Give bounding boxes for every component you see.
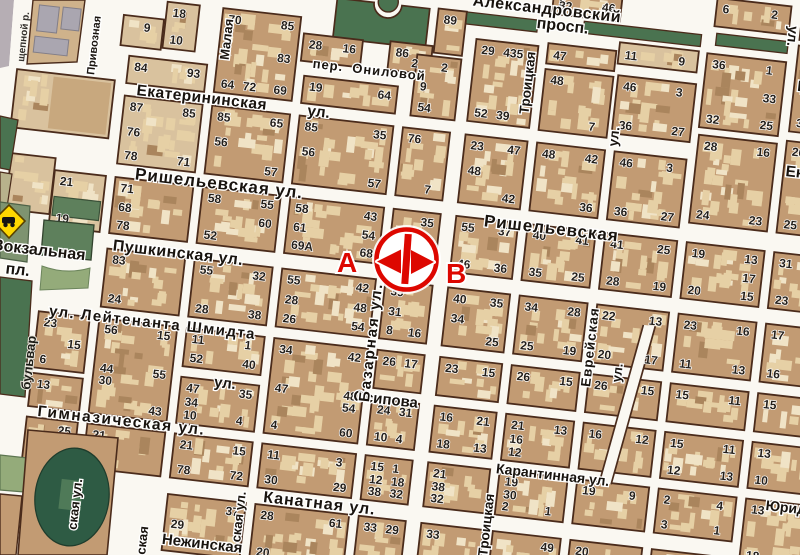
- svg-text:25: 25: [656, 242, 671, 257]
- svg-text:34: 34: [279, 342, 294, 357]
- svg-text:20: 20: [687, 283, 702, 298]
- svg-text:60: 60: [338, 425, 353, 440]
- svg-text:34: 34: [524, 299, 539, 314]
- svg-text:52: 52: [203, 228, 218, 243]
- svg-text:65: 65: [269, 115, 284, 130]
- svg-text:15: 15: [762, 397, 777, 412]
- svg-text:11: 11: [722, 442, 737, 457]
- svg-text:В: В: [446, 258, 466, 289]
- svg-text:435: 435: [503, 45, 525, 61]
- svg-text:10: 10: [373, 429, 388, 444]
- svg-text:16: 16: [588, 426, 603, 441]
- svg-text:13: 13: [553, 423, 568, 438]
- svg-text:13: 13: [473, 441, 488, 456]
- svg-text:28: 28: [284, 292, 299, 307]
- svg-text:16: 16: [439, 409, 454, 424]
- svg-text:55: 55: [286, 272, 301, 287]
- svg-text:15: 15: [739, 289, 754, 304]
- svg-text:11: 11: [267, 447, 282, 462]
- svg-text:15: 15: [481, 365, 496, 380]
- svg-text:10: 10: [169, 33, 184, 48]
- svg-text:72: 72: [229, 468, 244, 483]
- svg-text:87: 87: [129, 99, 144, 114]
- svg-text:55: 55: [152, 367, 167, 382]
- svg-text:17: 17: [404, 356, 419, 371]
- svg-text:85: 85: [280, 18, 295, 33]
- svg-text:18: 18: [172, 6, 187, 21]
- svg-text:23: 23: [444, 361, 459, 376]
- svg-text:18: 18: [745, 548, 760, 555]
- svg-text:29: 29: [332, 480, 347, 495]
- svg-text:56: 56: [214, 134, 229, 149]
- svg-text:пл.: пл.: [5, 260, 31, 280]
- svg-text:16: 16: [407, 325, 422, 340]
- svg-text:16: 16: [342, 41, 357, 56]
- svg-text:ул.: ул.: [784, 25, 800, 47]
- svg-text:42: 42: [501, 191, 516, 206]
- svg-text:13: 13: [36, 377, 51, 392]
- svg-text:36: 36: [493, 261, 508, 276]
- svg-text:85: 85: [182, 105, 197, 120]
- svg-text:52: 52: [189, 351, 204, 366]
- svg-text:28: 28: [308, 37, 323, 52]
- svg-text:13: 13: [744, 252, 759, 267]
- svg-text:47: 47: [507, 142, 522, 157]
- svg-text:28: 28: [567, 304, 582, 319]
- svg-text:57: 57: [264, 164, 279, 179]
- svg-text:33: 33: [762, 91, 777, 106]
- svg-text:21: 21: [59, 174, 74, 189]
- svg-text:17: 17: [644, 352, 659, 367]
- svg-text:27: 27: [671, 124, 686, 139]
- svg-text:23: 23: [748, 213, 763, 228]
- svg-text:55: 55: [260, 197, 275, 212]
- svg-text:А: А: [337, 247, 357, 278]
- svg-text:19: 19: [691, 246, 706, 261]
- svg-text:ул.: ул.: [213, 374, 237, 393]
- svg-text:58: 58: [207, 191, 222, 206]
- svg-text:61: 61: [292, 220, 307, 235]
- svg-text:76: 76: [407, 131, 422, 146]
- svg-text:57: 57: [367, 176, 382, 191]
- svg-text:12: 12: [507, 444, 522, 459]
- svg-text:36: 36: [712, 57, 727, 72]
- svg-text:35: 35: [528, 265, 543, 280]
- svg-text:47: 47: [186, 381, 201, 396]
- svg-text:21: 21: [510, 418, 525, 433]
- svg-text:48: 48: [541, 146, 556, 161]
- svg-text:58: 58: [295, 201, 310, 216]
- svg-text:72: 72: [242, 79, 257, 94]
- svg-text:93: 93: [186, 66, 201, 81]
- svg-text:21: 21: [179, 437, 194, 452]
- svg-text:21: 21: [476, 414, 491, 429]
- svg-text:35: 35: [372, 127, 387, 142]
- svg-text:12: 12: [635, 432, 650, 447]
- svg-text:30: 30: [98, 373, 113, 388]
- svg-text:76: 76: [126, 124, 141, 139]
- svg-text:46: 46: [619, 155, 634, 170]
- svg-text:28: 28: [703, 139, 718, 154]
- svg-text:85: 85: [216, 109, 231, 124]
- svg-text:20: 20: [575, 544, 590, 555]
- svg-text:24: 24: [695, 207, 710, 222]
- svg-text:34: 34: [450, 311, 465, 326]
- svg-text:15: 15: [669, 436, 684, 451]
- svg-text:29: 29: [481, 43, 496, 58]
- svg-text:42: 42: [584, 151, 599, 166]
- svg-text:71: 71: [120, 181, 135, 196]
- svg-text:13: 13: [750, 502, 765, 517]
- svg-text:35: 35: [238, 387, 253, 402]
- svg-text:29: 29: [385, 522, 400, 537]
- svg-text:15: 15: [640, 383, 655, 398]
- svg-text:38: 38: [431, 479, 446, 494]
- svg-text:32: 32: [705, 112, 720, 127]
- svg-text:20: 20: [255, 545, 270, 555]
- svg-text:89: 89: [443, 12, 458, 27]
- svg-text:16: 16: [766, 366, 781, 381]
- svg-text:40: 40: [242, 357, 257, 372]
- svg-text:26: 26: [516, 369, 531, 384]
- svg-text:16: 16: [756, 145, 771, 160]
- svg-text:71: 71: [176, 154, 191, 169]
- svg-text:26: 26: [791, 145, 800, 160]
- svg-text:39: 39: [495, 108, 510, 123]
- svg-text:36: 36: [579, 200, 594, 215]
- svg-text:11: 11: [678, 356, 693, 371]
- svg-text:68: 68: [359, 245, 374, 260]
- svg-text:35: 35: [489, 295, 504, 310]
- svg-text:69А: 69А: [290, 238, 314, 254]
- svg-text:83: 83: [276, 51, 291, 66]
- svg-text:28: 28: [605, 273, 620, 288]
- svg-text:ул.: ул.: [306, 103, 330, 122]
- svg-text:ская: ская: [133, 525, 151, 555]
- svg-text:18: 18: [390, 474, 405, 489]
- svg-text:26: 26: [593, 378, 608, 393]
- svg-text:49: 49: [540, 540, 555, 555]
- svg-text:86: 86: [395, 45, 410, 60]
- svg-text:25: 25: [571, 270, 586, 285]
- svg-text:16: 16: [736, 324, 751, 339]
- svg-text:46: 46: [622, 79, 637, 94]
- svg-text:19: 19: [652, 279, 667, 294]
- svg-text:15: 15: [559, 374, 574, 389]
- svg-text:25: 25: [519, 338, 534, 353]
- svg-text:25: 25: [485, 334, 500, 349]
- svg-text:78: 78: [123, 148, 138, 163]
- svg-text:68: 68: [118, 200, 133, 215]
- svg-text:33: 33: [795, 116, 800, 131]
- svg-text:60: 60: [258, 216, 273, 231]
- svg-text:24: 24: [107, 291, 122, 306]
- svg-text:38: 38: [247, 307, 262, 322]
- svg-text:84: 84: [134, 60, 149, 75]
- svg-text:64: 64: [220, 77, 235, 92]
- svg-text:31: 31: [778, 256, 793, 271]
- svg-text:55: 55: [461, 220, 476, 235]
- svg-text:33: 33: [426, 527, 441, 542]
- svg-text:11: 11: [728, 393, 743, 408]
- svg-text:54: 54: [417, 100, 432, 115]
- svg-text:61: 61: [328, 516, 343, 531]
- svg-text:20: 20: [597, 347, 612, 362]
- svg-text:64: 64: [377, 87, 392, 102]
- svg-text:22: 22: [601, 308, 616, 323]
- svg-text:48: 48: [467, 163, 482, 178]
- svg-text:54: 54: [361, 228, 376, 243]
- svg-text:78: 78: [176, 462, 191, 477]
- svg-text:15: 15: [675, 387, 690, 402]
- svg-text:19: 19: [308, 80, 323, 95]
- svg-text:32: 32: [252, 268, 267, 283]
- svg-text:10: 10: [754, 473, 769, 488]
- svg-text:78: 78: [116, 218, 131, 233]
- svg-text:25: 25: [759, 118, 774, 133]
- svg-text:30: 30: [264, 472, 279, 487]
- svg-text:36: 36: [613, 204, 628, 219]
- svg-text:13: 13: [648, 314, 663, 329]
- svg-text:47: 47: [553, 48, 568, 63]
- svg-text:47: 47: [274, 381, 289, 396]
- svg-text:52: 52: [474, 105, 489, 120]
- svg-text:40: 40: [452, 291, 467, 306]
- svg-text:13: 13: [757, 446, 772, 461]
- svg-text:27: 27: [660, 209, 675, 224]
- svg-text:26: 26: [382, 354, 397, 369]
- svg-text:85: 85: [304, 119, 319, 134]
- svg-text:13: 13: [719, 469, 734, 484]
- svg-text:28: 28: [260, 508, 275, 523]
- svg-text:25: 25: [783, 217, 798, 232]
- svg-text:35: 35: [420, 215, 435, 230]
- svg-text:23: 23: [683, 318, 698, 333]
- svg-text:69: 69: [273, 83, 288, 98]
- svg-text:23: 23: [774, 293, 789, 308]
- svg-text:15: 15: [232, 443, 247, 458]
- svg-text:43: 43: [363, 209, 378, 224]
- svg-text:29: 29: [170, 517, 185, 532]
- svg-text:12: 12: [666, 463, 681, 478]
- svg-text:48: 48: [550, 73, 565, 88]
- svg-text:33: 33: [363, 520, 378, 535]
- svg-text:17: 17: [742, 271, 757, 286]
- svg-text:26: 26: [282, 311, 297, 326]
- svg-text:Ек: Ек: [785, 163, 800, 182]
- svg-text:18: 18: [436, 436, 451, 451]
- svg-text:28: 28: [195, 301, 210, 316]
- svg-text:ул.: ул.: [609, 363, 626, 384]
- svg-text:19: 19: [562, 343, 577, 358]
- svg-text:23: 23: [470, 138, 485, 153]
- svg-text:15: 15: [67, 337, 82, 352]
- svg-text:56: 56: [301, 144, 316, 159]
- svg-text:17: 17: [770, 327, 785, 342]
- svg-text:13: 13: [731, 362, 746, 377]
- svg-text:31: 31: [388, 304, 403, 319]
- svg-text:11: 11: [624, 48, 639, 63]
- svg-text:38: 38: [367, 484, 382, 499]
- svg-text:ул.: ул.: [605, 126, 622, 147]
